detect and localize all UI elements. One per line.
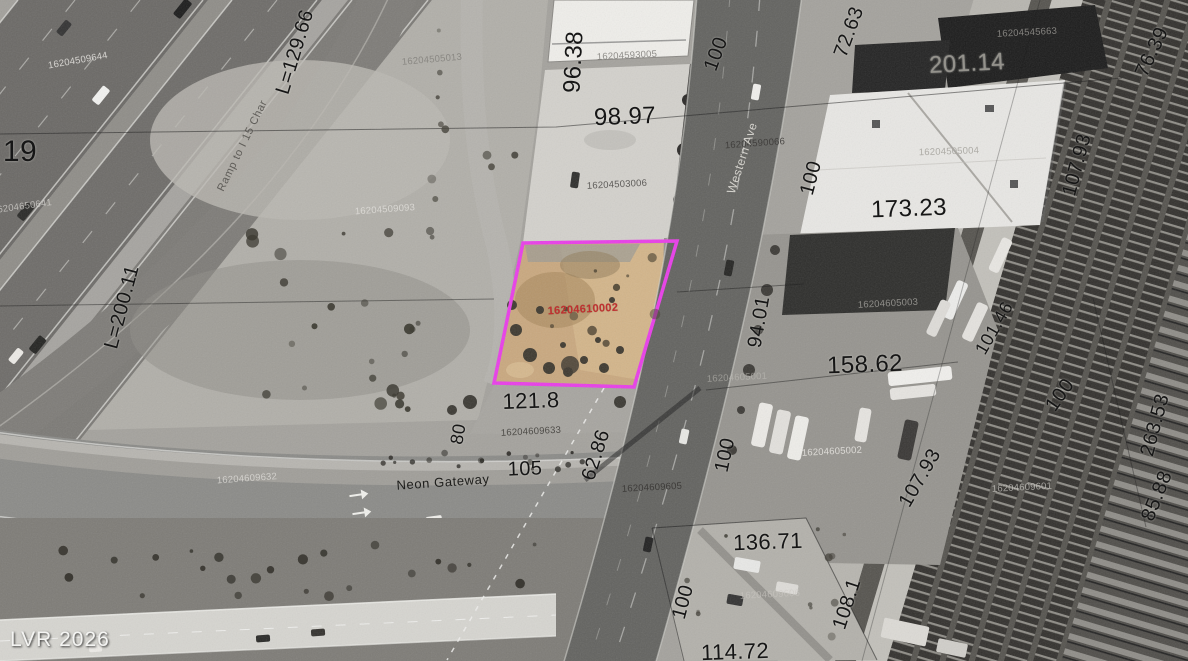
aerial-parcel-map: 19L=200.11L=129.6696.3898.9710072.63201.… [0, 0, 1188, 661]
aerial-photo [0, 0, 1188, 661]
lvr-watermark: LVR 2026 [10, 628, 110, 652]
